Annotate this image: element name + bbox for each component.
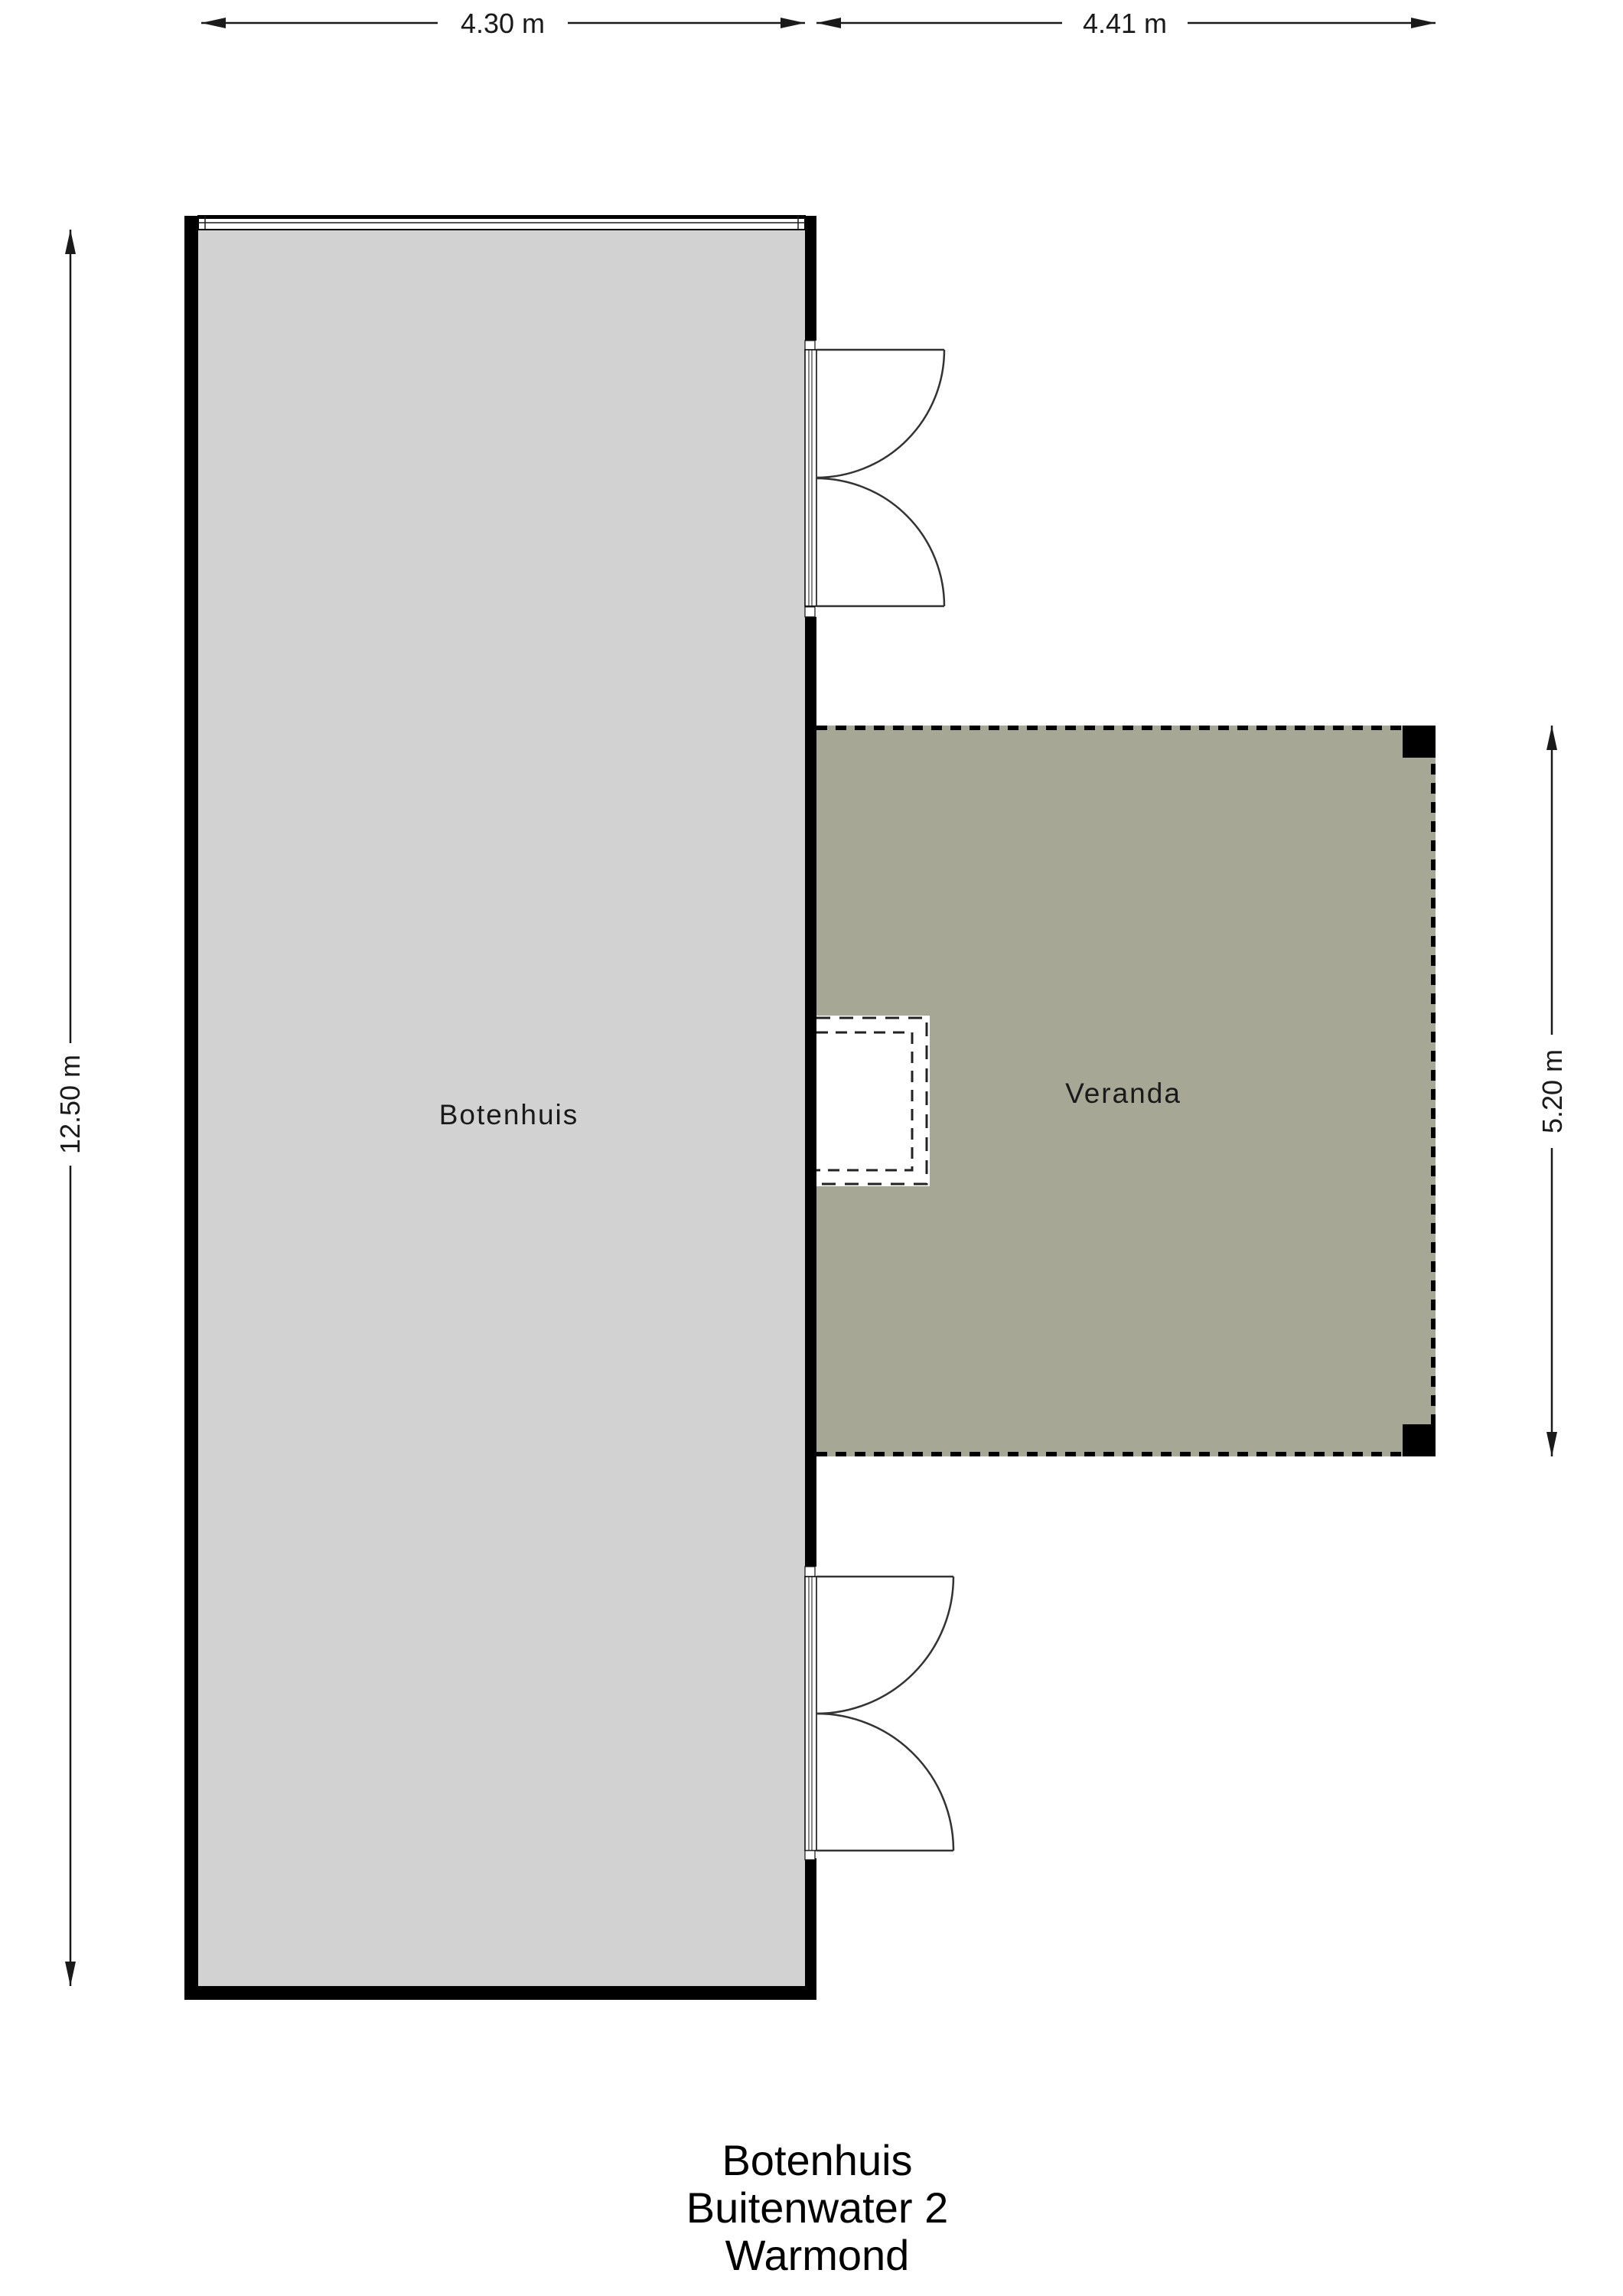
title-line-1: Botenhuis [722, 2136, 912, 2184]
title-line-2: Buitenwater 2 [686, 2183, 948, 2232]
door-2-frame [805, 1567, 816, 1860]
door-1-opening [805, 350, 816, 606]
window-outer-line [198, 216, 805, 219]
floor-plan-drawing: 4.30 m 4.41 m 12.50 m 5.20 m Botenhuis V… [0, 0, 1623, 2296]
dimension-label: 4.30 m [461, 8, 545, 39]
door-1-bottom-cap [805, 607, 815, 617]
veranda-hatch [816, 1016, 930, 1186]
veranda-room-label: Veranda [1065, 1078, 1181, 1109]
wall-left [184, 216, 198, 2000]
wall-right-lower-segment [805, 1858, 816, 2000]
plan-title: Botenhuis Buitenwater 2 Warmond [686, 2136, 948, 2279]
door-1-frame [805, 341, 816, 617]
dimension-label: 4.41 m [1083, 8, 1167, 39]
veranda-post-bottom-right [1403, 1424, 1436, 1456]
door-2-opening [805, 1577, 816, 1851]
wall-right-upper-segment [805, 216, 816, 341]
door-1-top-cap [805, 341, 815, 350]
floor-plan-page: 4.30 m 4.41 m 12.50 m 5.20 m Botenhuis V… [0, 0, 1623, 2296]
title-line-3: Warmond [725, 2231, 910, 2279]
veranda-post-top-right [1403, 726, 1436, 758]
dimension-label: 12.50 m [54, 1055, 86, 1154]
wall-bottom [184, 1986, 816, 2000]
window-top-wall [198, 216, 805, 230]
dimension-label: 5.20 m [1537, 1049, 1568, 1133]
wall-right-middle-segment [805, 617, 816, 1567]
door-2-bottom-cap [805, 1851, 815, 1860]
door-2-top-cap [805, 1567, 815, 1577]
botenhuis-room-label: Botenhuis [439, 1099, 579, 1130]
